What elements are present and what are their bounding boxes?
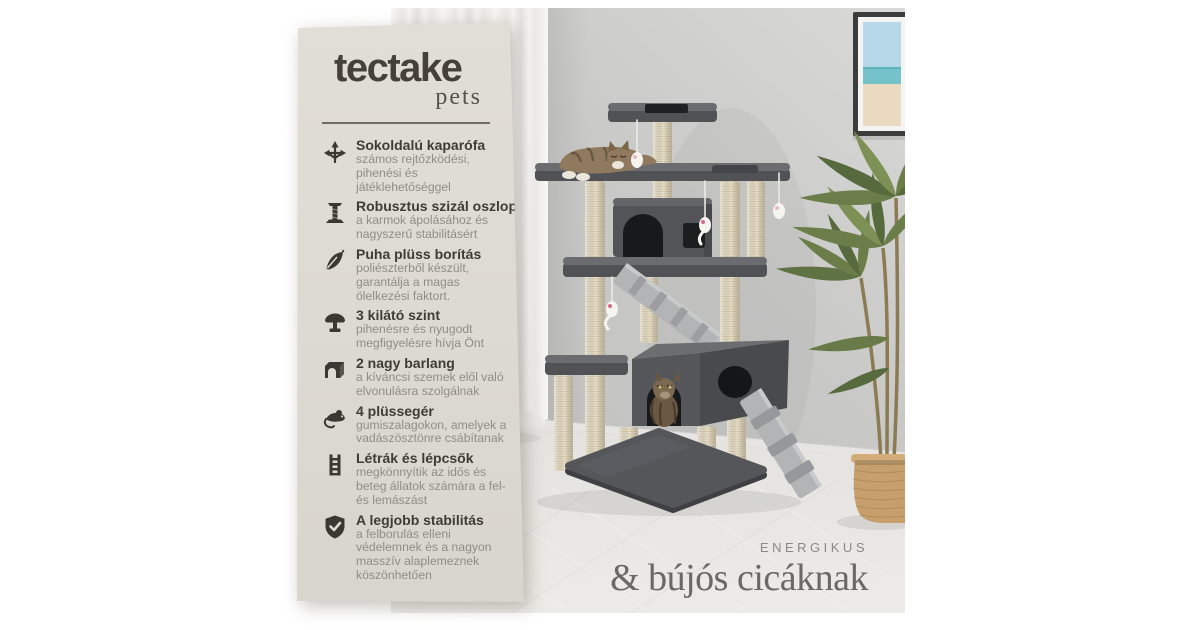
feature-desc: poliészterből készült, garantálja a maga… [356, 262, 511, 303]
feature-row: 2 nagy barlang a kíváncsi szemek elől va… [322, 356, 511, 399]
feature-desc: gumiszalagokon, amelyek a vadászösztönre… [356, 419, 511, 447]
feature-title: 4 plüssegér [356, 404, 511, 419]
cave-icon [322, 356, 348, 399]
sisal-post [554, 375, 573, 471]
sisal-post [585, 181, 605, 465]
feature-title: 3 kilátó szint [356, 308, 511, 323]
brand-wordmark: tectake [334, 48, 484, 88]
feature-row: Puha plüss borítás poliészterből készült… [322, 247, 511, 303]
cave-upper [613, 198, 712, 257]
platform-mid [563, 257, 767, 277]
feature-row: Sokoldalú kaparófa számos rejtőzködési, … [322, 138, 511, 194]
tagline-kicker: ENERGIKUS [610, 540, 868, 555]
feature-row: Létrák és lépcsők megkönnyítik az idős é… [322, 451, 511, 507]
feature-desc: a karmok ápolásához és nagyszerű stabili… [356, 214, 516, 242]
feature-desc: megkönnyítik az idős és beteg állatok sz… [356, 466, 511, 507]
platform-top [608, 103, 717, 122]
feature-desc: számos rejtőzködési, pihenési és játékle… [356, 153, 511, 194]
brand-logo: tectake pets [334, 48, 484, 110]
ladder-icon [322, 451, 348, 507]
feature-title: Puha plüss borítás [356, 247, 511, 262]
banner: tectake pets Sokoldalú kaparófa számos r… [0, 0, 1200, 630]
feature-row: 4 plüssegér gumiszalagokon, amelyek a va… [322, 404, 511, 447]
feature-title: Sokoldalú kaparófa [356, 138, 511, 153]
feature-desc: pihenésre és nyugodt megfigyelésre hívja… [356, 323, 511, 351]
mouse-toy-icon [322, 404, 348, 447]
feature-title: 2 nagy barlang [356, 356, 511, 371]
tagline-headline: & bújós cicáknak [610, 557, 868, 599]
feature-row: 3 kilátó szint pihenésre és nyugodt megf… [322, 308, 511, 351]
feature-title: Létrák és lépcsők [356, 451, 511, 466]
feature-row: Robusztus szizál oszlopok a karmok ápolá… [322, 199, 511, 242]
platform-lower [545, 355, 628, 375]
sisal-post [747, 181, 765, 263]
multidirection-arrows-icon [322, 138, 348, 194]
tagline: ENERGIKUS & bújós cicáknak [610, 540, 868, 599]
plant-basket [851, 454, 905, 523]
feather-icon [322, 247, 348, 303]
info-card-surface: tectake pets Sokoldalú kaparófa számos r… [297, 0, 525, 612]
scratching-post-icon [322, 199, 348, 242]
divider [322, 122, 490, 124]
feature-desc: a felborulás elleni védelemnek és a nagy… [356, 528, 511, 583]
framed-picture [853, 12, 905, 140]
feature-title: A legjobb stabilitás [356, 513, 511, 528]
info-card: tectake pets Sokoldalú kaparófa számos r… [297, 0, 525, 612]
feature-row: A legjobb stabilitás a felborulás elleni… [322, 513, 511, 583]
feature-title: Robusztus szizál oszlopok [356, 199, 516, 214]
feature-desc: a kíváncsi szemek elől való elvonulásra … [356, 371, 511, 399]
shield-check-icon [322, 513, 348, 583]
lookout-platform-icon [322, 308, 348, 351]
